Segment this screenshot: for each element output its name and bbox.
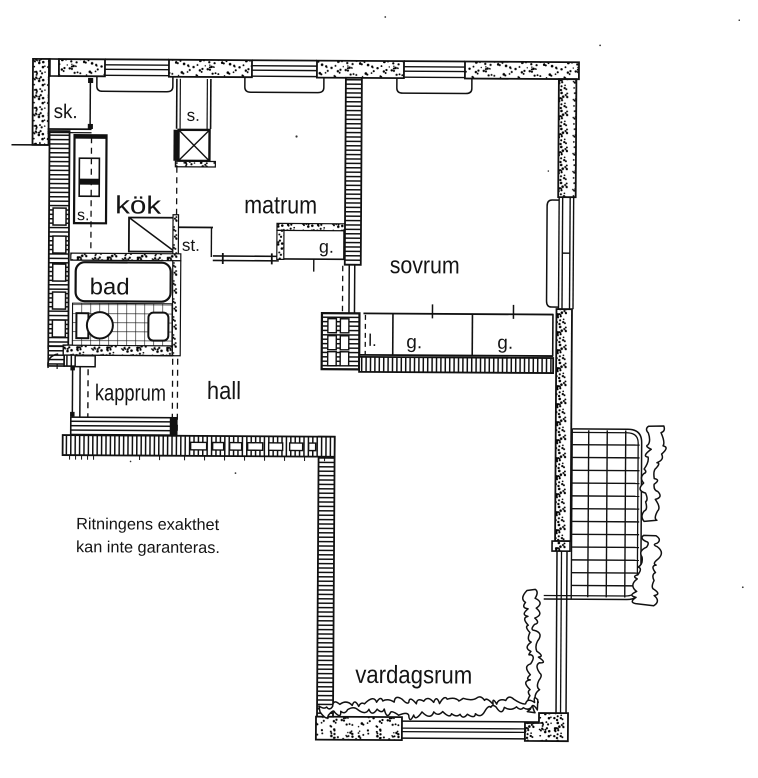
svg-text:sk.: sk.: [54, 101, 78, 123]
svg-text:hall: hall: [207, 377, 241, 405]
svg-text:sovrum: sovrum: [390, 252, 460, 279]
svg-text:kök: kök: [115, 191, 162, 219]
svg-text:g.: g.: [319, 237, 334, 257]
svg-text:l.: l.: [368, 331, 377, 350]
svg-text:s.: s.: [77, 207, 90, 224]
svg-text:s.: s.: [187, 106, 200, 125]
svg-text:kan inte garanteras.: kan inte garanteras.: [76, 538, 220, 557]
svg-text:matrum: matrum: [244, 191, 317, 219]
svg-text:vardagsrum: vardagsrum: [355, 661, 472, 690]
svg-text:kapprum: kapprum: [95, 379, 166, 405]
svg-text:g.: g.: [406, 332, 422, 353]
svg-text:st.: st.: [182, 236, 200, 255]
svg-text:bad: bad: [90, 273, 130, 299]
svg-text:Ritningens exakthet: Ritningens exakthet: [76, 515, 220, 534]
svg-text:g.: g.: [497, 333, 513, 354]
